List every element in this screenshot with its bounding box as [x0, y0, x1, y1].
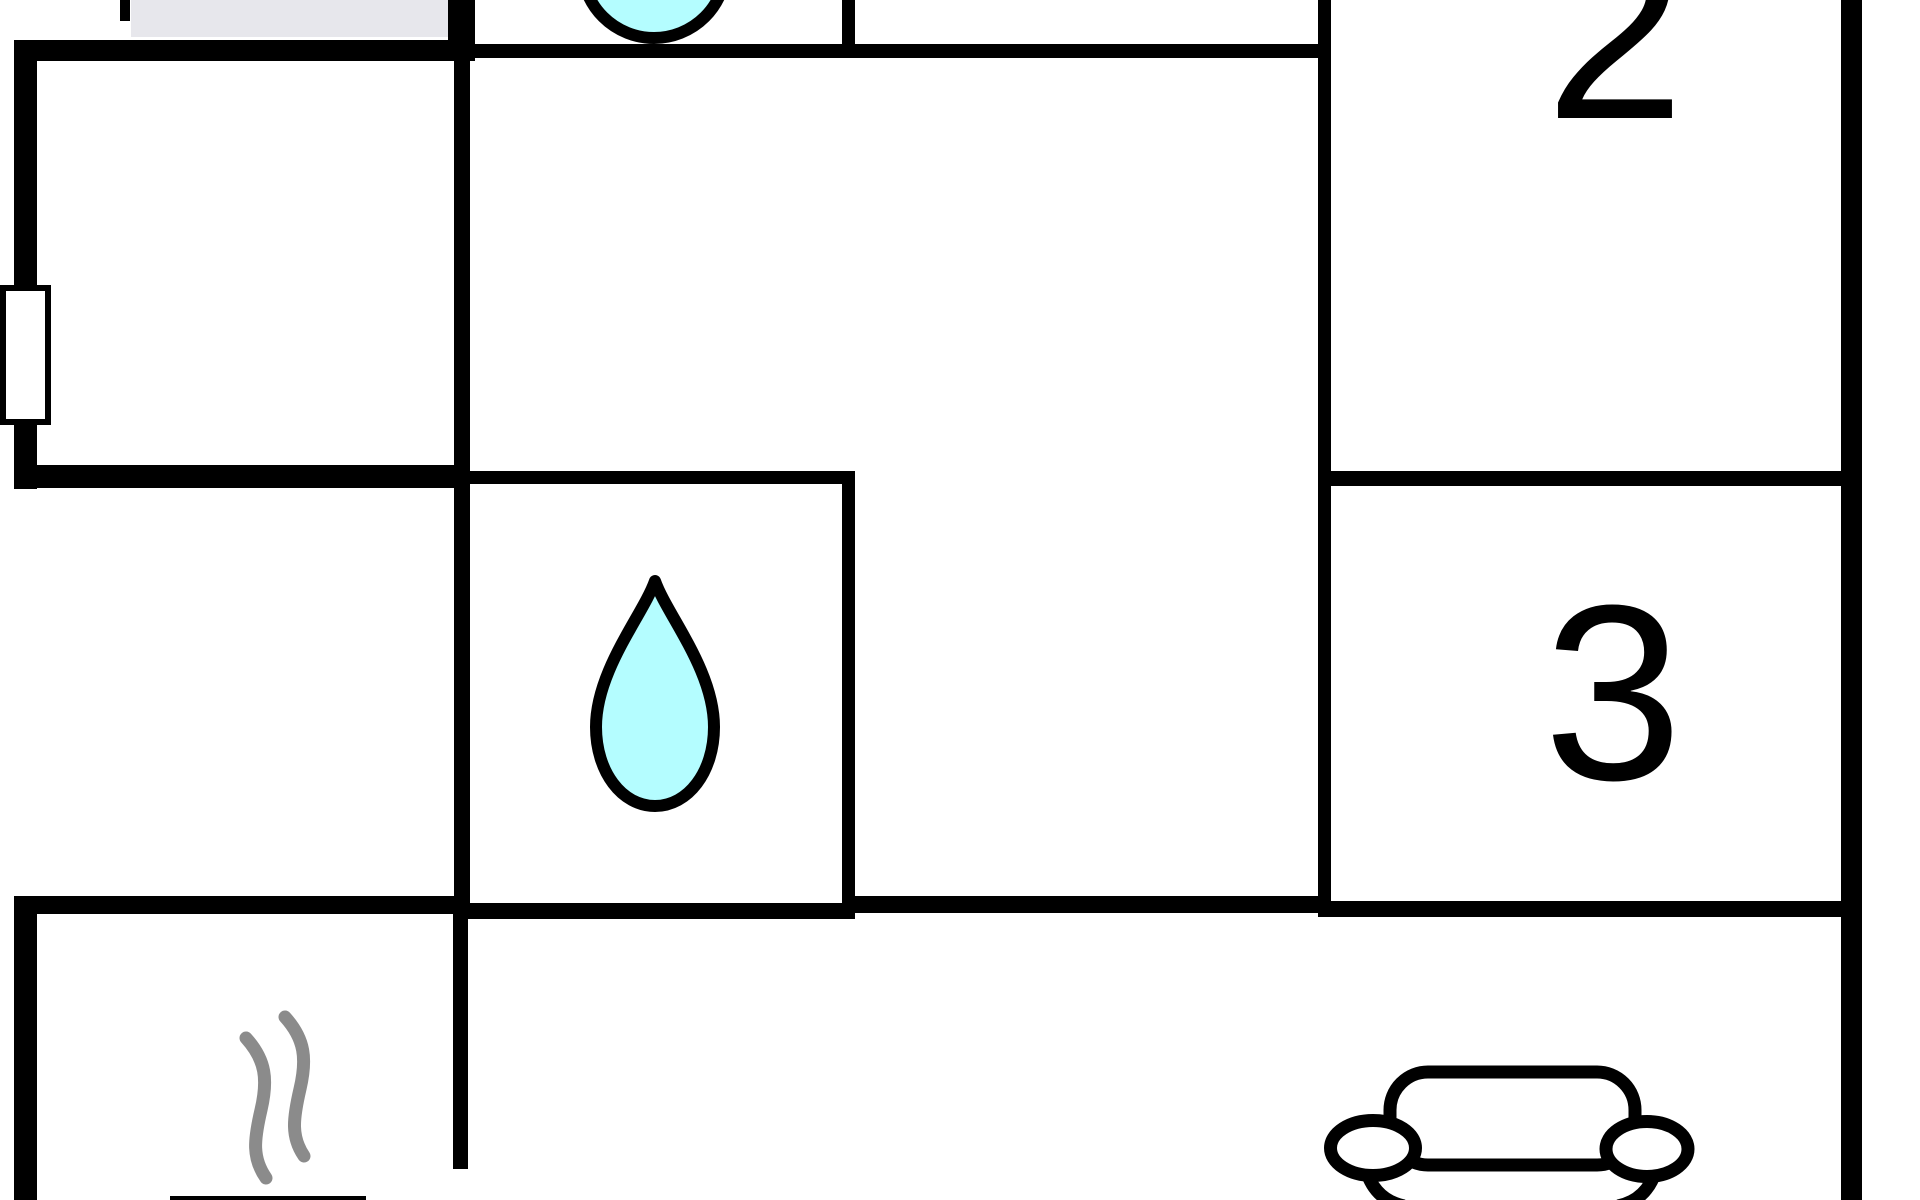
svg-text:3: 3 [1543, 553, 1682, 832]
svg-text:2: 2 [1545, 0, 1684, 171]
